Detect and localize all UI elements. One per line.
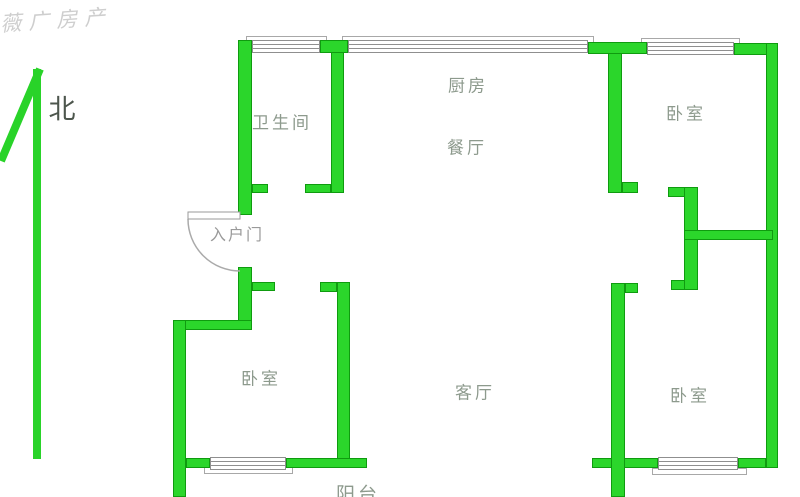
wall-segment — [671, 280, 685, 290]
wall-segment — [320, 282, 337, 292]
window-symbol — [252, 40, 320, 53]
wall-segment — [186, 458, 210, 468]
wall-segment — [625, 283, 638, 293]
room-label-bedroom-br: 卧室 — [670, 382, 710, 407]
wall-segment — [252, 282, 275, 291]
wall-segment — [766, 43, 778, 468]
wall-segment — [305, 184, 331, 193]
floor-plan: 薇广房产 北 卫生间厨房餐厅卧室卧室客厅卧室阳台入户门 — [0, 0, 800, 497]
plan-overlay — [0, 0, 800, 497]
wall-segment — [608, 53, 622, 193]
watermark: 薇广房产 — [0, 0, 181, 38]
room-label-bedroom-tr: 卧室 — [666, 100, 706, 125]
room-label-balcony: 阳台 — [336, 480, 380, 497]
entry-door-leaf — [188, 212, 240, 219]
room-label-kitchen: 厨房 — [448, 72, 488, 97]
room-label-bedroom-bl: 卧室 — [241, 365, 281, 390]
wall-segment — [252, 184, 268, 193]
wall-segment — [684, 230, 773, 240]
north-label: 北 — [49, 88, 76, 127]
room-label-dining: 餐厅 — [447, 134, 487, 159]
wall-segment — [622, 182, 638, 193]
wall-segment — [611, 283, 625, 497]
window-symbol — [647, 42, 734, 55]
wall-segment — [238, 40, 252, 215]
wall-segment — [286, 458, 367, 468]
room-label-entry-door: 入户门 — [210, 221, 264, 245]
wall-segment — [592, 458, 658, 468]
window-symbol — [210, 457, 286, 470]
room-label-living: 客厅 — [455, 379, 495, 404]
wall-segment — [738, 458, 766, 468]
window-symbol — [348, 40, 588, 53]
window-symbol — [658, 457, 738, 470]
north-arrow-icon — [1, 69, 40, 161]
room-label-bathroom: 卫生间 — [252, 109, 312, 134]
wall-segment — [337, 282, 350, 468]
wall-segment — [331, 52, 344, 193]
wall-segment — [668, 187, 685, 197]
wall-segment — [173, 320, 186, 497]
